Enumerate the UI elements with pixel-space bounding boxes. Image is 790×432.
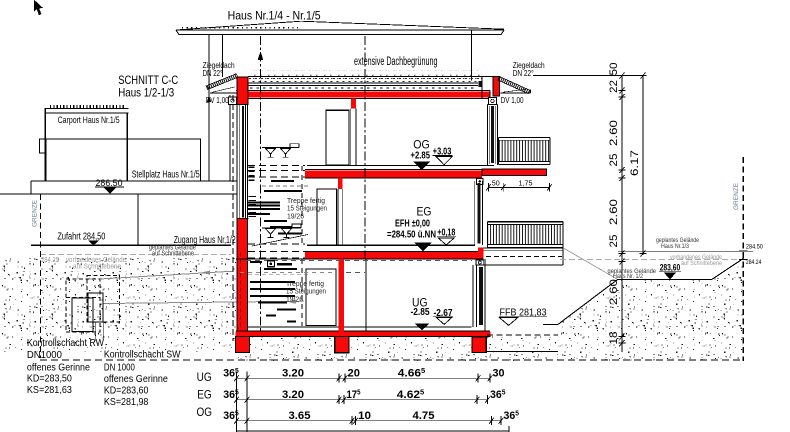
svg-text:Haus Nr. 1/2: Haus Nr. 1/2	[613, 273, 643, 280]
svg-text:KS=281,98: KS=281,98	[104, 396, 149, 408]
svg-text:DV 1,00: DV 1,00	[501, 96, 524, 105]
svg-text:4.75: 4.75	[413, 410, 435, 422]
svg-text:EFH ±0,00: EFH ±0,00	[395, 218, 430, 229]
svg-text:25: 25	[608, 154, 620, 167]
svg-text:EG: EG	[417, 207, 432, 219]
svg-text:Zufahrt 284,50: Zufahrt 284,50	[57, 231, 105, 242]
svg-text:3.20: 3.20	[282, 367, 304, 379]
svg-text:UG: UG	[197, 370, 212, 384]
svg-text:284.25: 284.25	[41, 257, 59, 264]
svg-text:283,60: 283,60	[660, 262, 681, 273]
svg-text:DN 22°: DN 22°	[513, 69, 534, 78]
svg-text:auf Schnittebene: auf Schnittebene	[681, 260, 722, 267]
svg-text:2.60: 2.60	[608, 199, 620, 225]
svg-text:GRENZE: GRENZE	[733, 182, 740, 210]
svg-text:offenes Gerinne: offenes Gerinne	[27, 361, 90, 373]
svg-text:KS=281,63: KS=281,63	[27, 384, 72, 396]
svg-text:Haus 1/2-1/3: Haus 1/2-1/3	[118, 85, 174, 99]
svg-text:2.60: 2.60	[608, 279, 620, 305]
svg-text:DV 1,00: DV 1,00	[206, 96, 229, 105]
svg-text:KD=283,60: KD=283,60	[104, 385, 149, 397]
svg-text:Kontrollschacht RW: Kontrollschacht RW	[27, 337, 104, 349]
svg-text:offenes Gerinne: offenes Gerinne	[104, 373, 168, 385]
svg-text:284.50: 284.50	[746, 244, 763, 251]
svg-text:EG: EG	[197, 387, 212, 401]
svg-text:OG: OG	[413, 139, 430, 151]
svg-text:KD=283,50: KD=283,50	[27, 373, 72, 385]
svg-text:Stellplatz Haus Nr.1/5: Stellplatz Haus Nr.1/5	[132, 169, 200, 180]
svg-text:2.60: 2.60	[608, 120, 620, 146]
svg-text:30: 30	[493, 367, 505, 379]
svg-text:DN 1000: DN 1000	[104, 361, 135, 373]
svg-text:25: 25	[608, 235, 620, 248]
svg-text:22: 22	[608, 80, 620, 93]
svg-text:10: 10	[358, 410, 371, 422]
svg-text:20: 20	[348, 367, 360, 379]
svg-text:DN1000: DN1000	[27, 349, 62, 361]
svg-text:Carport Haus Nr.1/5: Carport Haus Nr.1/5	[58, 115, 120, 126]
svg-text:=284.50 ü.NN: =284.50 ü.NN	[387, 230, 436, 241]
svg-text:DN 22°: DN 22°	[203, 69, 223, 78]
svg-text:auf Schnittebene: auf Schnittebene	[152, 250, 194, 257]
svg-text:Kontrollschacht SW: Kontrollschacht SW	[104, 348, 181, 360]
svg-text:18: 18	[608, 332, 620, 345]
svg-text:GRENZE: GRENZE	[32, 199, 39, 227]
svg-text:auf Schnittebene: auf Schnittebene	[73, 261, 121, 270]
svg-text:extensive Dachbegrünung: extensive Dachbegrünung	[354, 56, 438, 68]
svg-text:286.50: 286.50	[96, 178, 123, 189]
svg-text:284.24: 284.24	[746, 259, 762, 266]
svg-text:3.65: 3.65	[289, 410, 311, 422]
svg-text:OG: OG	[197, 405, 213, 419]
svg-text:-2.85: -2.85	[411, 307, 430, 318]
svg-text:3.20: 3.20	[282, 389, 304, 401]
svg-text:Haus Nr.1/3: Haus Nr.1/3	[661, 243, 689, 250]
svg-text:Haus Nr.1/4 - Nr.1/5: Haus Nr.1/4 - Nr.1/5	[228, 9, 321, 23]
svg-text:19/26: 19/26	[286, 294, 303, 303]
svg-text:1,75: 1,75	[519, 179, 533, 188]
svg-text:6.17: 6.17	[629, 150, 641, 176]
svg-text:19/26: 19/26	[287, 211, 304, 220]
svg-text:50: 50	[608, 63, 620, 76]
svg-text:+2.85: +2.85	[411, 151, 431, 162]
svg-text:50: 50	[492, 179, 500, 188]
